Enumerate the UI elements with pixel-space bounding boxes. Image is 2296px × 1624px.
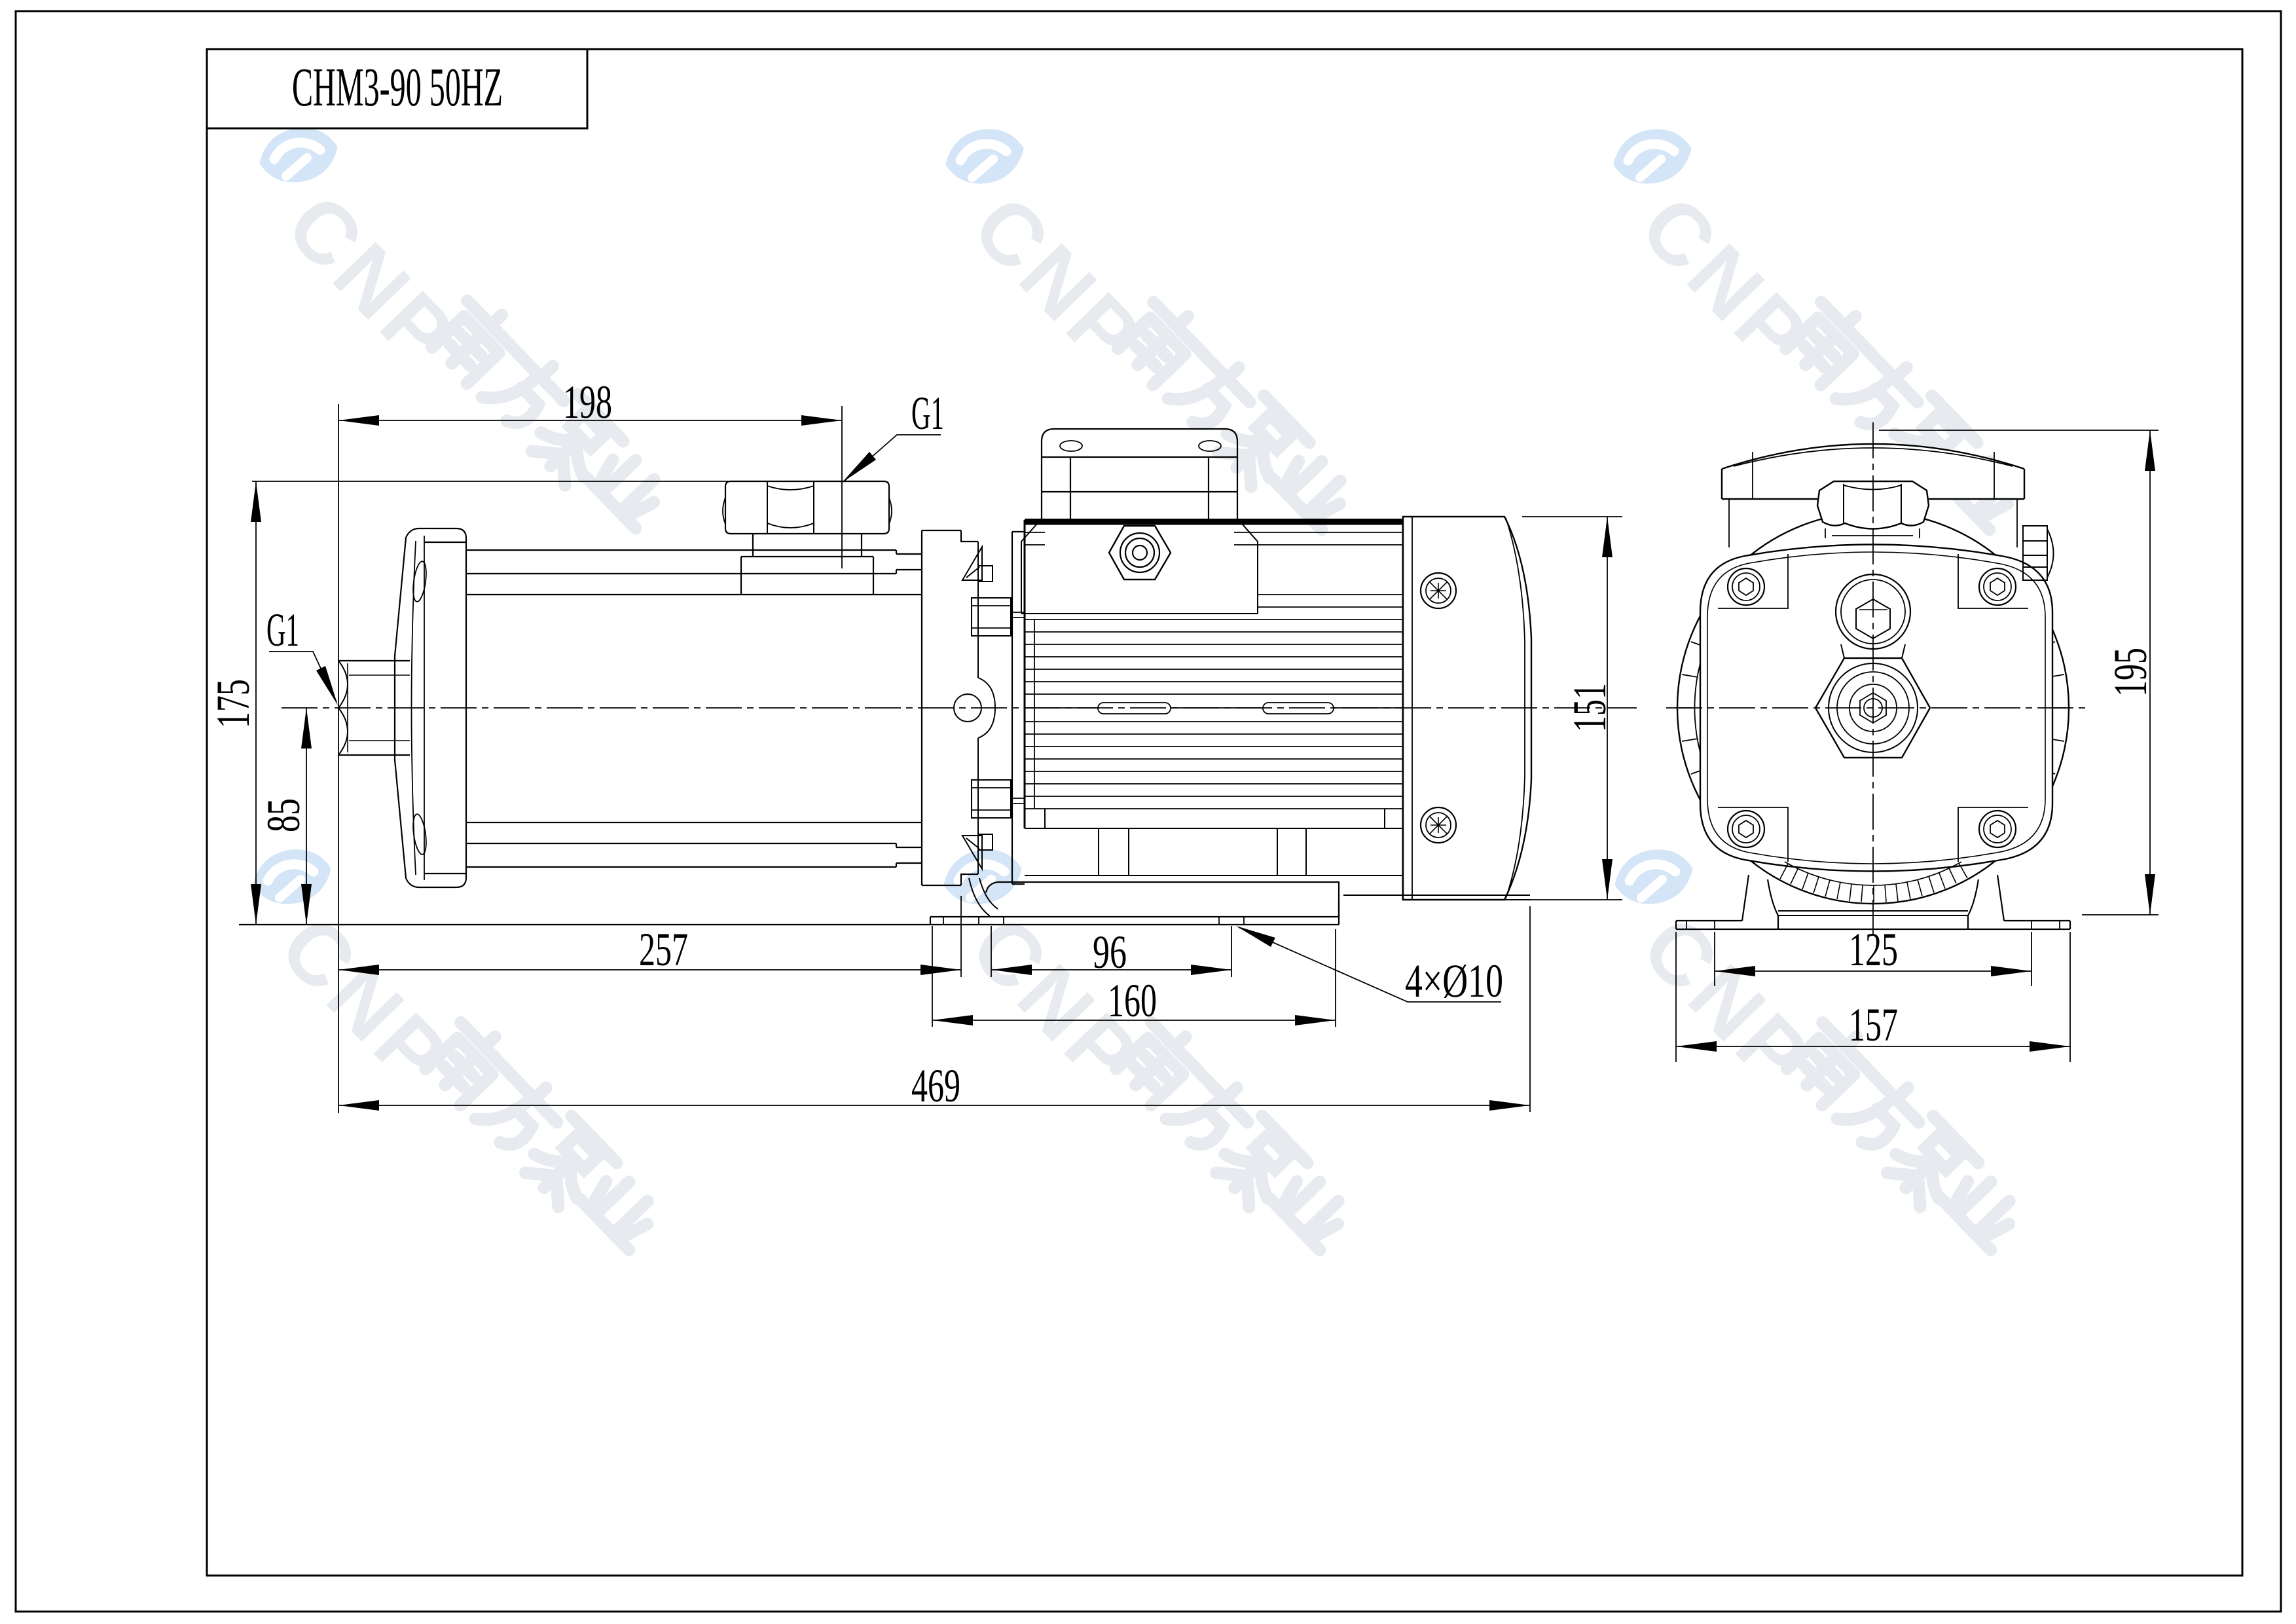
svg-text:85: 85 — [257, 798, 310, 832]
svg-text:125: 125 — [1849, 923, 1898, 976]
svg-text:G1: G1 — [911, 387, 944, 439]
svg-text:CHM3-90 50HZ: CHM3-90 50HZ — [292, 57, 503, 118]
svg-text:G1: G1 — [266, 604, 299, 656]
svg-text:160: 160 — [1108, 974, 1157, 1027]
svg-text:96: 96 — [1093, 926, 1127, 978]
svg-text:4×Ø10: 4×Ø10 — [1405, 955, 1503, 1007]
svg-text:198: 198 — [563, 376, 612, 428]
svg-text:157: 157 — [1849, 999, 1898, 1051]
svg-text:151: 151 — [1563, 683, 1616, 732]
svg-text:257: 257 — [639, 923, 688, 976]
svg-text:469: 469 — [911, 1060, 960, 1112]
svg-text:175: 175 — [207, 679, 259, 728]
svg-text:195: 195 — [2104, 648, 2157, 697]
